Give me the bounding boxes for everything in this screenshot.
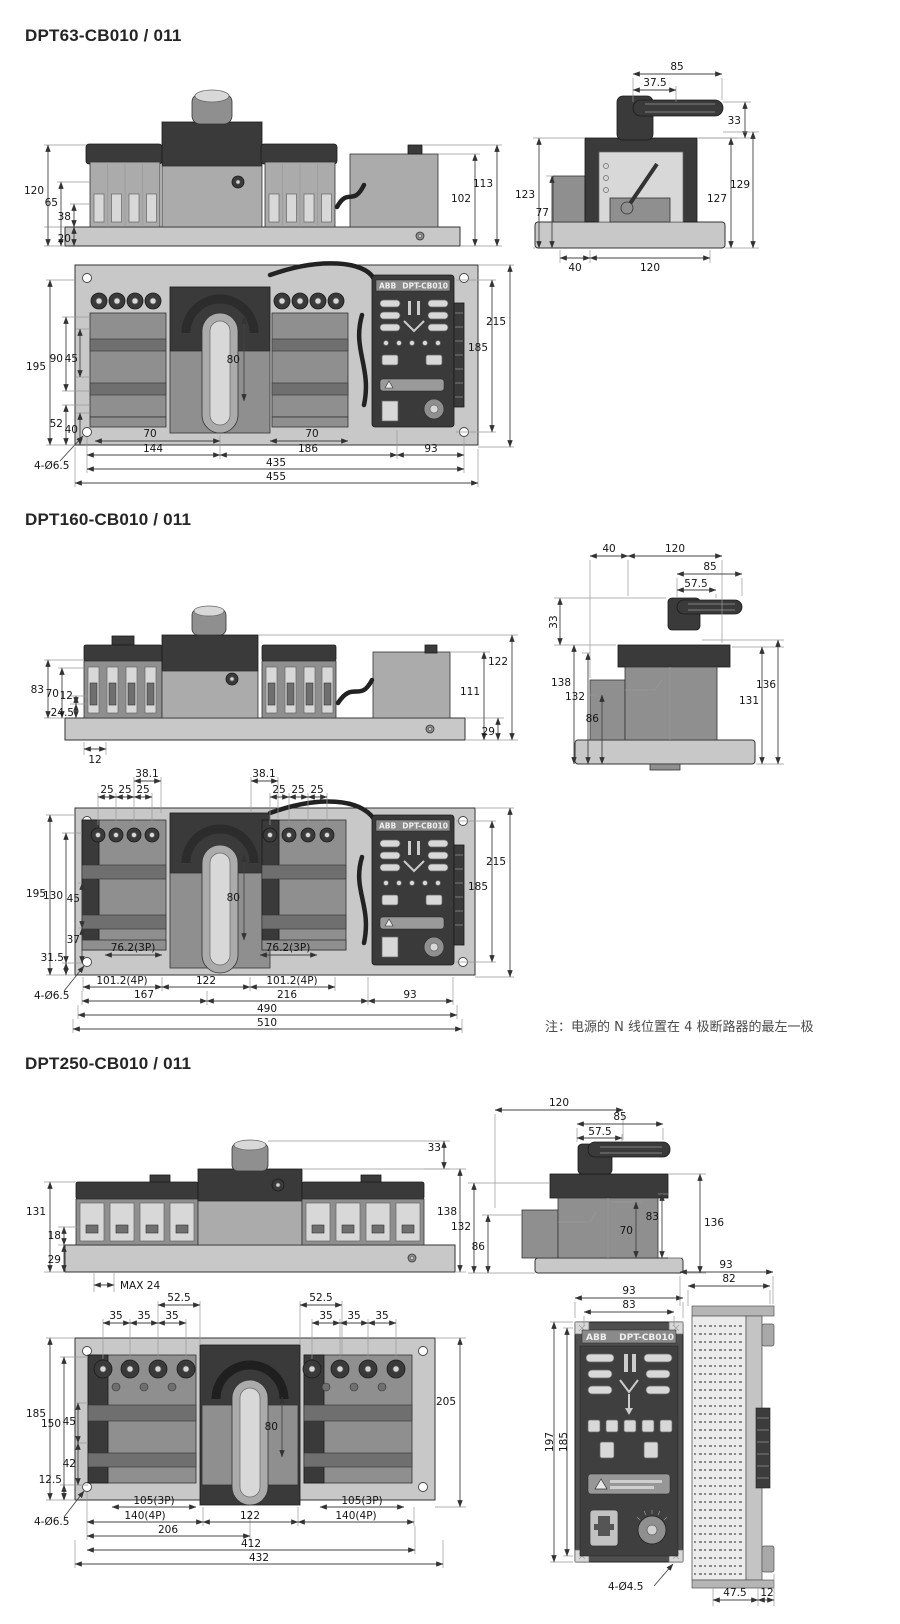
panel-brand: ABB bbox=[379, 282, 397, 291]
dim-label: 140(4P) bbox=[124, 1510, 165, 1522]
dim-label: 25 bbox=[291, 784, 304, 796]
dim-label: 185 bbox=[558, 1432, 570, 1452]
dim-label: 18 bbox=[48, 1230, 61, 1242]
dim-label: 57.5 bbox=[684, 578, 707, 590]
dpt250-side-view: 120 85 57.5 132 86 70 83 136 bbox=[450, 1070, 760, 1280]
dim-label: 136 bbox=[756, 679, 776, 691]
dim-label: 120 bbox=[640, 262, 660, 274]
dim-label: 77 bbox=[536, 207, 549, 219]
dim-label: 122 bbox=[488, 656, 508, 668]
dim-label: 25 bbox=[272, 784, 285, 796]
dim-label: 31.5 bbox=[41, 952, 64, 964]
dim-label: 57.5 bbox=[588, 1126, 611, 1138]
dim-label: 83 bbox=[31, 684, 44, 696]
dim-label: 412 bbox=[241, 1538, 261, 1550]
dim-label: 136 bbox=[704, 1217, 724, 1229]
dim-label: 83 bbox=[622, 1299, 635, 1311]
dim-label: 206 bbox=[158, 1524, 178, 1536]
dim-label: 510 bbox=[257, 1017, 277, 1029]
controller-side-view: 93 82 47.5 12 bbox=[668, 1258, 793, 1618]
dim-label: 12.5 bbox=[39, 1474, 62, 1486]
dim-label: 101.2(4P) bbox=[96, 975, 147, 987]
dim-label: 38 bbox=[58, 211, 71, 223]
n-pole-note: 注：电源的 N 线位置在 4 极断路器的最左一极 bbox=[545, 1016, 814, 1035]
dim-label: 85 bbox=[613, 1111, 626, 1123]
dim-label: 120 bbox=[549, 1097, 569, 1109]
dim-label: 35 bbox=[165, 1310, 178, 1322]
dim-label: 101.2(4P) bbox=[266, 975, 317, 987]
dim-label: 12 bbox=[760, 1587, 773, 1599]
dim-label: 93 bbox=[622, 1285, 635, 1297]
section-title-dpt63: DPT63-CB010 / 011 bbox=[25, 26, 181, 46]
dim-label: 432 bbox=[249, 1552, 269, 1564]
dim-label: 80 bbox=[265, 1421, 278, 1433]
device-silhouette bbox=[75, 1338, 435, 1505]
panel-brand: ABB bbox=[379, 822, 397, 831]
dim-label: 127 bbox=[707, 193, 727, 205]
dim-label: 76.2(3P) bbox=[266, 942, 311, 954]
dim-label: 40 bbox=[602, 543, 615, 555]
device-silhouette bbox=[535, 96, 725, 248]
dim-label: 82 bbox=[722, 1273, 735, 1285]
dim-label: 70 bbox=[46, 688, 59, 700]
dim-label: 195 bbox=[26, 361, 46, 373]
dpt250-front-view: 33 131 18 29 138 MAX 24 bbox=[20, 1085, 480, 1300]
dim-label: 144 bbox=[143, 443, 163, 455]
dim-label: 83 bbox=[646, 1211, 659, 1223]
controller-panel: ABB DPT-CB010 bbox=[372, 275, 464, 427]
dim-label: 45 bbox=[63, 1416, 76, 1428]
dim-label: 490 bbox=[257, 1003, 277, 1015]
dim-label: 70 bbox=[305, 428, 318, 440]
dim-label: 215 bbox=[486, 316, 506, 328]
dim-label: 35 bbox=[347, 1310, 360, 1322]
dim-label: 12 bbox=[60, 690, 73, 702]
dim-label: 47.5 bbox=[723, 1587, 746, 1599]
device-silhouette bbox=[65, 90, 460, 246]
controller-panel: ABB DPT-CB010 bbox=[372, 815, 464, 965]
dim-label: 86 bbox=[472, 1241, 486, 1253]
dim-label: 65 bbox=[45, 197, 58, 209]
dim-label: 130 bbox=[43, 890, 63, 902]
dim-label: 102 bbox=[451, 193, 471, 205]
dim-label: 70 bbox=[143, 428, 156, 440]
dpt63-side-view: 85 37.5 33 123 77 127 129 40 120 bbox=[505, 58, 775, 273]
dim-label: 45 bbox=[65, 353, 78, 365]
device-silhouette bbox=[522, 1142, 683, 1273]
dim-label: 131 bbox=[26, 1206, 46, 1218]
dim-label: 140(4P) bbox=[335, 1510, 376, 1522]
dim-label: 35 bbox=[375, 1310, 388, 1322]
dim-label: 186 bbox=[298, 443, 318, 455]
dim-label: 105(3P) bbox=[133, 1495, 174, 1507]
dim-label: 52.5 bbox=[167, 1292, 190, 1304]
dim-label: 90 bbox=[50, 353, 63, 365]
dim-label: 216 bbox=[277, 989, 297, 1001]
dim-label: 33 bbox=[548, 615, 560, 628]
dim-label: 85 bbox=[670, 61, 683, 73]
dpt160-side-view: 40 120 85 57.5 33 138 132 86 131 136 bbox=[530, 540, 785, 775]
dim-label: 111 bbox=[460, 686, 480, 698]
dim-label: 120 bbox=[665, 543, 685, 555]
dim-label: 85 bbox=[703, 561, 716, 573]
device-silhouette bbox=[65, 606, 465, 740]
dim-label: 215 bbox=[486, 856, 506, 868]
device-silhouette bbox=[65, 1140, 455, 1272]
dpt250-plan-view: 52.5 35 35 35 52.5 35 35 35 185 150 45 4… bbox=[20, 1285, 490, 1585]
dim-label: 150 bbox=[41, 1418, 61, 1430]
dpt160-front-view: 83 70 12 24.5 12 122 111 29 bbox=[20, 575, 525, 770]
dim-label: 132 bbox=[451, 1221, 471, 1233]
dim-label: 80 bbox=[227, 354, 240, 366]
dim-label: 76.2(3P) bbox=[111, 942, 156, 954]
catalog-page: DPT63-CB010 / 011 120 65 38 20 102 113 bbox=[0, 0, 900, 1624]
dim-label: 33 bbox=[428, 1142, 441, 1154]
dim-label: 25 bbox=[310, 784, 323, 796]
dim-label: 205 bbox=[436, 1396, 456, 1408]
dim-label: 185 bbox=[468, 342, 488, 354]
dim-label: 70 bbox=[620, 1225, 633, 1237]
dim-label: 93 bbox=[719, 1259, 732, 1271]
controller-body bbox=[692, 1306, 774, 1588]
dim-label: 122 bbox=[196, 975, 216, 987]
dim-label: 33 bbox=[728, 115, 741, 127]
dpt63-plan-view: ABB DPT-CB010 195 90 45 52 40 80 215 185… bbox=[20, 255, 520, 493]
dim-label: 138 bbox=[551, 677, 571, 689]
dim-label: 93 bbox=[424, 443, 437, 455]
dim-label: 37.5 bbox=[643, 77, 666, 89]
section-title-dpt250: DPT250-CB010 / 011 bbox=[25, 1054, 191, 1074]
dim-label: 120 bbox=[24, 185, 44, 197]
dim-label: 35 bbox=[319, 1310, 332, 1322]
dim-label: 37 bbox=[67, 934, 80, 946]
dim-label: 25 bbox=[118, 784, 131, 796]
dim-label: 35 bbox=[109, 1310, 122, 1322]
dim-label: 132 bbox=[565, 691, 585, 703]
dim-label: 45 bbox=[67, 893, 80, 905]
dim-label: 29 bbox=[482, 726, 495, 738]
panel-model: DPT-CB010 bbox=[402, 282, 448, 291]
dim-label: 131 bbox=[739, 695, 759, 707]
dim-label: 29 bbox=[48, 1254, 61, 1266]
dim-label: 167 bbox=[134, 989, 154, 1001]
dim-label: 25 bbox=[100, 784, 113, 796]
controller-body: ABB DPT-CB010 bbox=[575, 1322, 683, 1562]
dim-label: 86 bbox=[586, 713, 600, 725]
dim-label: 185 bbox=[468, 881, 488, 893]
dim-label: 455 bbox=[266, 471, 286, 483]
dim-label: 52.5 bbox=[309, 1292, 332, 1304]
dim-label: 38.1 bbox=[252, 768, 275, 780]
dim-label: 123 bbox=[515, 189, 535, 201]
dim-label: 25 bbox=[136, 784, 149, 796]
panel-model: DPT-CB010 bbox=[402, 822, 448, 831]
panel-model: DPT-CB010 bbox=[619, 1333, 674, 1343]
dim-label: 20 bbox=[58, 233, 71, 245]
hole-callout: 4-Ø6.5 bbox=[34, 460, 69, 472]
dim-label: 80 bbox=[227, 892, 240, 904]
hole-callout: 4-Ø6.5 bbox=[34, 1516, 69, 1528]
dim-label: 40 bbox=[65, 424, 78, 436]
dim-label: 40 bbox=[568, 262, 581, 274]
panel-brand: ABB bbox=[586, 1333, 607, 1343]
dpt63-front-view: 120 65 38 20 102 113 bbox=[20, 82, 520, 262]
dim-label: 122 bbox=[240, 1510, 260, 1522]
dim-label: 113 bbox=[473, 178, 493, 190]
dim-label: 129 bbox=[730, 179, 750, 191]
dim-label: 35 bbox=[137, 1310, 150, 1322]
device-silhouette: ABB DPT-CB010 bbox=[75, 263, 478, 445]
hole-callout: 4-Ø6.5 bbox=[34, 990, 69, 1002]
dim-label: 197 bbox=[544, 1432, 556, 1452]
dim-label: 93 bbox=[403, 989, 416, 1001]
dim-label: 52 bbox=[50, 418, 63, 430]
dim-label: 42 bbox=[63, 1458, 76, 1470]
dim-label: 38.1 bbox=[135, 768, 158, 780]
section-title-dpt160: DPT160-CB010 / 011 bbox=[25, 510, 191, 530]
dpt160-plan-view: ABB DPT-CB010 38.1 25 25 25 38.1 25 25 2… bbox=[20, 765, 520, 1050]
hole-callout: 4-Ø4.5 bbox=[608, 1581, 643, 1593]
dim-label: 24.5 bbox=[51, 707, 74, 719]
dim-label: 435 bbox=[266, 457, 286, 469]
dim-label: 105(3P) bbox=[341, 1495, 382, 1507]
